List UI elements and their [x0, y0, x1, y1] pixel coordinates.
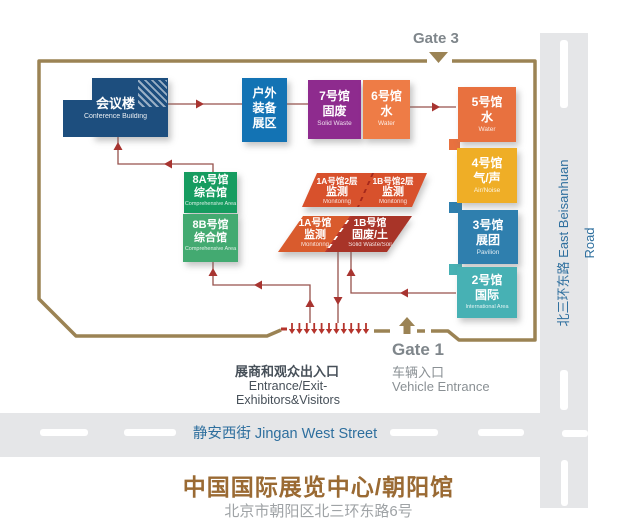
gate1-label: Gate 1: [392, 340, 472, 360]
hall-3: 3号馆 展团 Pavilion: [458, 210, 518, 264]
hall-1a2f-name: 1A号馆2层: [305, 176, 369, 186]
gate1-arrow-icon: [399, 317, 415, 334]
gate3-label: Gate 3: [413, 30, 483, 47]
hall-5-en: Water: [458, 125, 516, 134]
hall-8b-type: 综合馆: [183, 232, 238, 245]
hall-1b2f-label: 1B号馆2层 监测 Monitoring: [362, 176, 424, 206]
entrance-arrows: [281, 323, 369, 334]
hall-1b2f-en: Monitoring: [362, 198, 424, 206]
outdoor-label-3: 展区: [242, 116, 287, 131]
outdoor-label-2: 装备: [242, 101, 287, 116]
hall-8a: 8A号馆 综合馆 Comprehensive Area: [184, 172, 237, 213]
conference-building-label: 会议楼 Conference Building: [63, 96, 168, 121]
hall-2-name: 2号馆: [457, 273, 517, 288]
hall-8b-en: Comprehensive Area: [183, 245, 238, 253]
hall-3-en: Pavilion: [458, 248, 518, 257]
hall-8a-type: 综合馆: [184, 187, 237, 200]
hall-4-type: 气/声: [457, 171, 517, 186]
hall-1b-name: 1B号馆: [338, 218, 402, 229]
hall-7-en: Solid Waste: [308, 119, 361, 128]
hall-1a2f-label: 1A号馆2层 监测 Monitoring: [305, 176, 369, 206]
hall-5-type: 水: [458, 110, 516, 125]
hall-6-en: Water: [363, 119, 410, 128]
hall-3-name: 3号馆: [458, 218, 518, 233]
hall-1ab-level2: 1A号馆2层 监测 Monitoring 1B号馆2层 监测 Monitorin…: [302, 173, 427, 207]
hall-1a2f-en: Monitoring: [305, 198, 369, 206]
hall-6-type: 水: [363, 104, 410, 119]
conference-name-en: Conference Building: [63, 112, 168, 121]
hall-1b-label: 1B号馆 固废/土 Solid Waste/Soil: [338, 218, 402, 249]
hall-1a-en: Monitoring: [284, 241, 346, 249]
venue-address: 北京市朝阳区北三环东路6号: [0, 500, 637, 521]
hall-1b2f-name: 1B号馆2层: [362, 176, 424, 186]
hall-4-en: Air/Noise: [457, 186, 517, 195]
hall-1a-name: 1A号馆: [284, 218, 346, 229]
hall-8b-name: 8B号馆: [183, 219, 238, 232]
hall-6: 6号馆 水 Water: [363, 80, 410, 139]
hall-2: 2号馆 国际 International Area: [457, 267, 517, 318]
venue-title: 中国国际展览中心/朝阳馆: [0, 468, 637, 502]
outdoor-label-1: 户外: [242, 86, 287, 101]
hall-1a-type: 监测: [284, 229, 346, 241]
hall-1ab-ground: 1A号馆 监测 Monitoring 1B号馆 固废/土 Solid Waste…: [278, 216, 412, 252]
hall-8a-name: 8A号馆: [184, 174, 237, 187]
hall-7-type: 固废: [308, 104, 361, 119]
hall-7: 7号馆 固废 Solid Waste: [308, 80, 361, 139]
exhibition-center-map: 北三环东路 East Beisanhuan Road 静安西街 Jingan W…: [0, 0, 637, 525]
hall-6-name: 6号馆: [363, 89, 410, 104]
hall-1b-en: Solid Waste/Soil: [338, 241, 402, 249]
hall-5: 5号馆 水 Water: [458, 87, 516, 142]
hall-5-name: 5号馆: [458, 95, 516, 110]
outdoor-equipment-area: 户外 装备 展区: [242, 78, 287, 142]
entrance-cn-label: 展商和观众出入口: [235, 361, 410, 380]
hall-1b2f-type: 监测: [362, 186, 424, 198]
gate1-en-label: Vehicle Entrance: [392, 379, 490, 394]
hall-1a2f-type: 监测: [305, 186, 369, 198]
hall-7-name: 7号馆: [308, 89, 361, 104]
hall-8a-en: Comprehensive Area: [184, 200, 237, 208]
hall-1b-type: 固废/土: [338, 229, 402, 241]
hall-2-en: International Area: [457, 303, 517, 312]
hall-4-name: 4号馆: [457, 156, 517, 171]
hall-8b: 8B号馆 综合馆 Comprehensive Area: [183, 214, 238, 262]
entrance-en-label: Entrance/Exit-Exhibitors&Visitors: [198, 379, 378, 407]
hall-2-type: 国际: [457, 288, 517, 303]
conference-name-cn: 会议楼: [63, 96, 168, 112]
gate3-arrow-icon: [429, 52, 448, 63]
hall-3-type: 展团: [458, 233, 518, 248]
hall-4: 4号馆 气/声 Air/Noise: [457, 148, 517, 203]
hall-1a-label: 1A号馆 监测 Monitoring: [284, 218, 346, 249]
